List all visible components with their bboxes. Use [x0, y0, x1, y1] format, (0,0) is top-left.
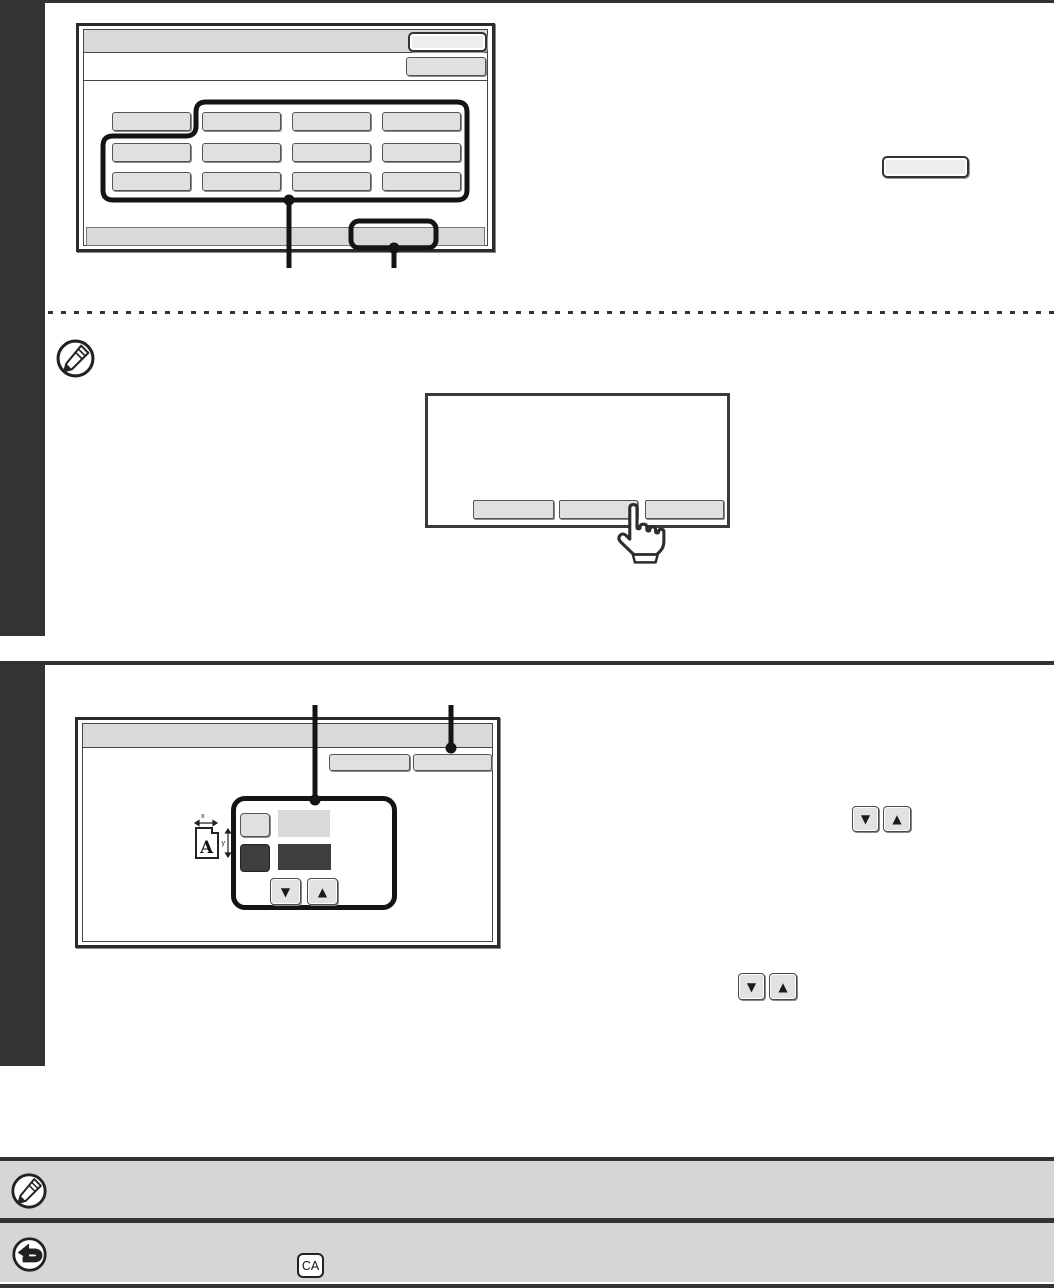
- top-rule: [0, 0, 1054, 3]
- screen2-title-bar: [83, 724, 492, 748]
- up-arrow-icon: ▲: [318, 886, 327, 898]
- svg-text:A: A: [199, 838, 214, 858]
- inline-up-key[interactable]: ▲: [769, 973, 797, 1000]
- x-dimension-key[interactable]: [240, 813, 270, 837]
- screen1-area: [83, 29, 488, 246]
- screen1-bottom-bar: [86, 227, 485, 246]
- down-arrow-icon: ▼: [747, 981, 756, 993]
- decrement-arrow-key[interactable]: ▼: [270, 878, 301, 905]
- xy-entry-callout: ▼ ▲: [231, 796, 397, 910]
- section2-sidebar: [0, 661, 45, 1066]
- clear-all-key[interactable]: CA: [297, 1253, 324, 1278]
- size-key[interactable]: [202, 172, 281, 191]
- inline-key-button[interactable]: [882, 156, 969, 178]
- confirmation-dialog: [425, 393, 730, 528]
- size-key[interactable]: [382, 112, 461, 131]
- size-key[interactable]: [382, 172, 461, 191]
- inline-down-key[interactable]: ▼: [852, 806, 879, 832]
- size-key[interactable]: [112, 112, 191, 131]
- pencil-circle-icon: [55, 338, 96, 379]
- dialog-button-left[interactable]: [473, 500, 554, 519]
- size-key[interactable]: [112, 172, 191, 191]
- down-arrow-icon: ▼: [281, 886, 290, 898]
- size-key[interactable]: [292, 112, 371, 131]
- section-divider-rule: [0, 661, 1054, 665]
- svg-text:x: x: [201, 813, 205, 820]
- pencil-circle-icon: [10, 1172, 48, 1210]
- footer-note-band: [0, 1161, 1054, 1218]
- up-arrow-icon: ▲: [778, 981, 787, 993]
- y-value-field[interactable]: [278, 844, 331, 870]
- size-key[interactable]: [112, 143, 191, 162]
- size-key[interactable]: [292, 172, 371, 191]
- down-arrow-icon: ▼: [861, 813, 870, 825]
- manual-page: x A y ▼ ▲ ▼ ▲ ▼ ▲ CA: [0, 0, 1054, 1288]
- section1-sidebar: [0, 0, 45, 636]
- x-value-field[interactable]: [278, 810, 330, 837]
- inline-up-key[interactable]: ▲: [883, 806, 911, 832]
- size-key[interactable]: [202, 143, 281, 162]
- size-key[interactable]: [292, 143, 371, 162]
- hand-touch-icon: [605, 503, 669, 565]
- screen1-ok-button[interactable]: [408, 32, 487, 52]
- size-key[interactable]: [382, 143, 461, 162]
- footer-back-band: CA: [0, 1223, 1054, 1282]
- up-arrow-icon: ▲: [892, 813, 901, 825]
- increment-arrow-key[interactable]: ▲: [307, 878, 338, 905]
- dotted-separator: [48, 311, 1054, 314]
- bottom-rule: [0, 1284, 1054, 1288]
- inline-down-key[interactable]: ▼: [738, 973, 765, 1000]
- y-dimension-key-selected[interactable]: [240, 844, 270, 872]
- document-xy-dimensions-icon: x A y: [192, 812, 232, 862]
- screen1-title-bar: [84, 30, 487, 53]
- screen2-button-a[interactable]: [329, 754, 410, 771]
- size-key[interactable]: [202, 112, 281, 131]
- touch-panel-screenshot-1: [76, 23, 495, 252]
- svg-text:y: y: [222, 840, 226, 847]
- screen1-sub-bar: [84, 52, 487, 81]
- screen1-sub-button[interactable]: [406, 57, 486, 76]
- screen2-button-b[interactable]: [413, 754, 492, 771]
- return-arrow-icon[interactable]: [11, 1236, 48, 1273]
